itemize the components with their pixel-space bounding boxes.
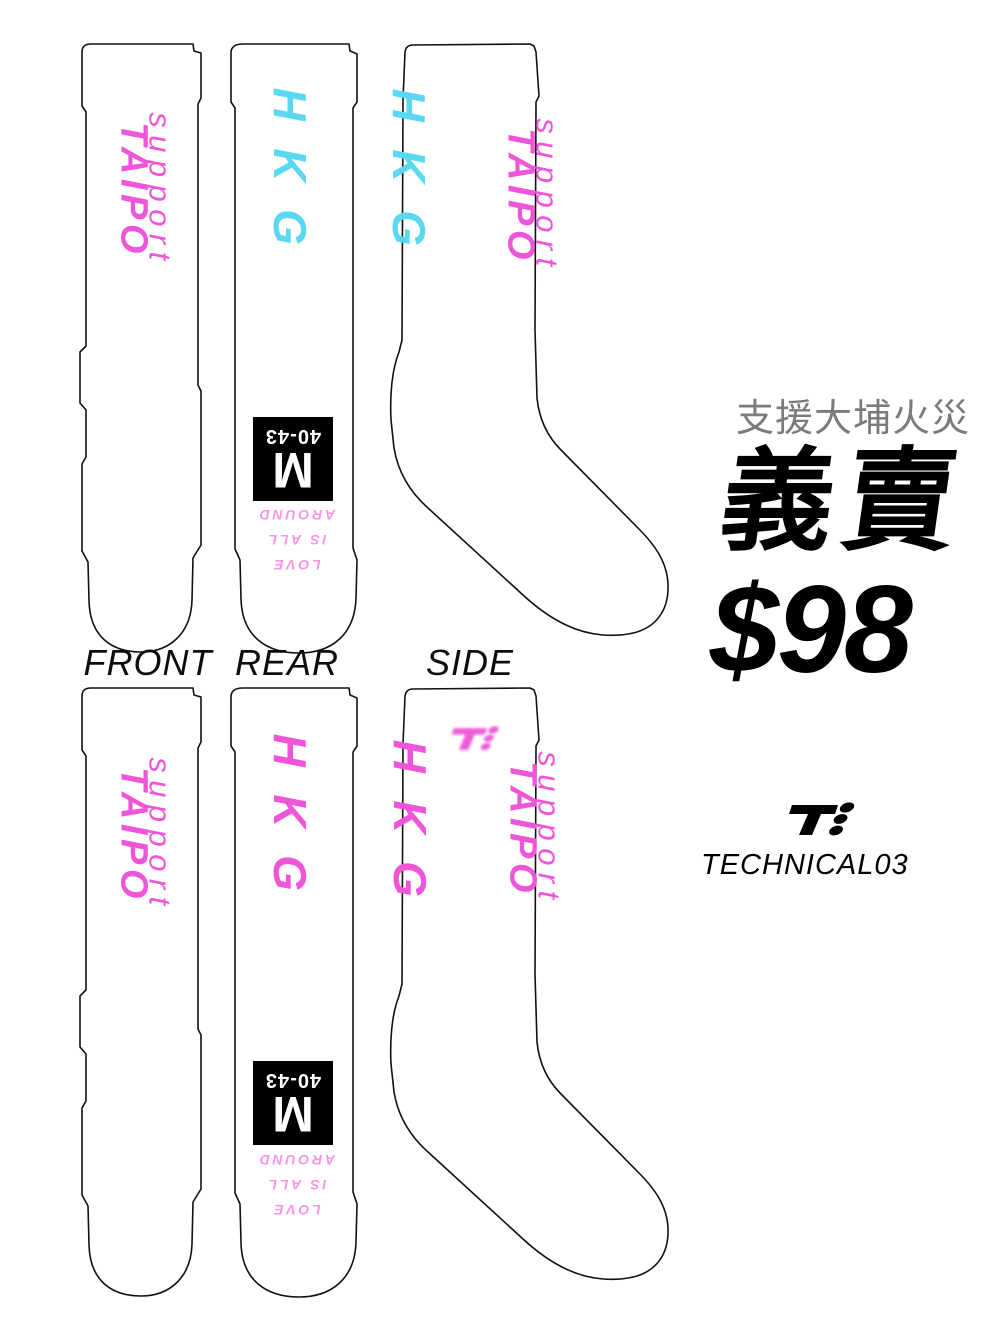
slogan-text-top: LOVE IS ALL AROUND [257, 501, 335, 577]
taipo-text: TAIPO [118, 112, 148, 267]
brand-name: TECHNICAL03 [701, 849, 909, 882]
side-sock-text-bottom: support TAIPO [507, 751, 560, 906]
slogan-line: LOVE [257, 552, 335, 577]
size-letter: M [272, 1092, 314, 1137]
brand-logo-icon [780, 801, 860, 839]
promo-price: $98 [710, 572, 911, 690]
size-letter: M [272, 448, 314, 493]
size-badge-bottom: M 40-43 [253, 1061, 333, 1145]
taipo-text: TAIPO [118, 757, 148, 912]
slogan-text-bottom: LOVE IS ALL AROUND [257, 1146, 335, 1222]
side-sock-hkg-bottom: HKG [387, 739, 433, 924]
brand-logo-icon-pink [445, 725, 503, 753]
rear-sock-hkg-top: HKG [267, 87, 313, 272]
view-label-front: FRONT [84, 642, 213, 684]
slogan-line: IS ALL [257, 1171, 335, 1196]
promo-subtitle: 支援大埔火災 [736, 400, 970, 438]
side-sock-hkg-top: HKG [386, 88, 432, 273]
size-range: 40-43 [265, 426, 321, 448]
slogan-line: AROUND [257, 1146, 335, 1171]
size-badge-top: M 40-43 [253, 417, 333, 501]
slogan-line: AROUND [257, 501, 335, 526]
slogan-line: LOVE [257, 1197, 335, 1222]
slogan-line: IS ALL [257, 526, 335, 551]
size-range: 40-43 [265, 1070, 321, 1092]
front-sock-text-bottom: support TAIPO [118, 757, 171, 912]
taipo-text: TAIPO [505, 118, 535, 273]
view-label-side: SIDE [426, 642, 514, 684]
promo-title: 義賣 [714, 446, 974, 558]
artboard: support TAIPO HKG M 40-43 LOVE IS ALL AR… [0, 0, 1000, 1317]
view-label-rear: REAR [235, 642, 339, 684]
rear-sock-hkg-bottom: HKG [267, 733, 313, 918]
taipo-text: TAIPO [507, 751, 537, 906]
front-sock-text-top: support TAIPO [118, 112, 171, 267]
side-sock-text-top: support TAIPO [505, 118, 558, 273]
